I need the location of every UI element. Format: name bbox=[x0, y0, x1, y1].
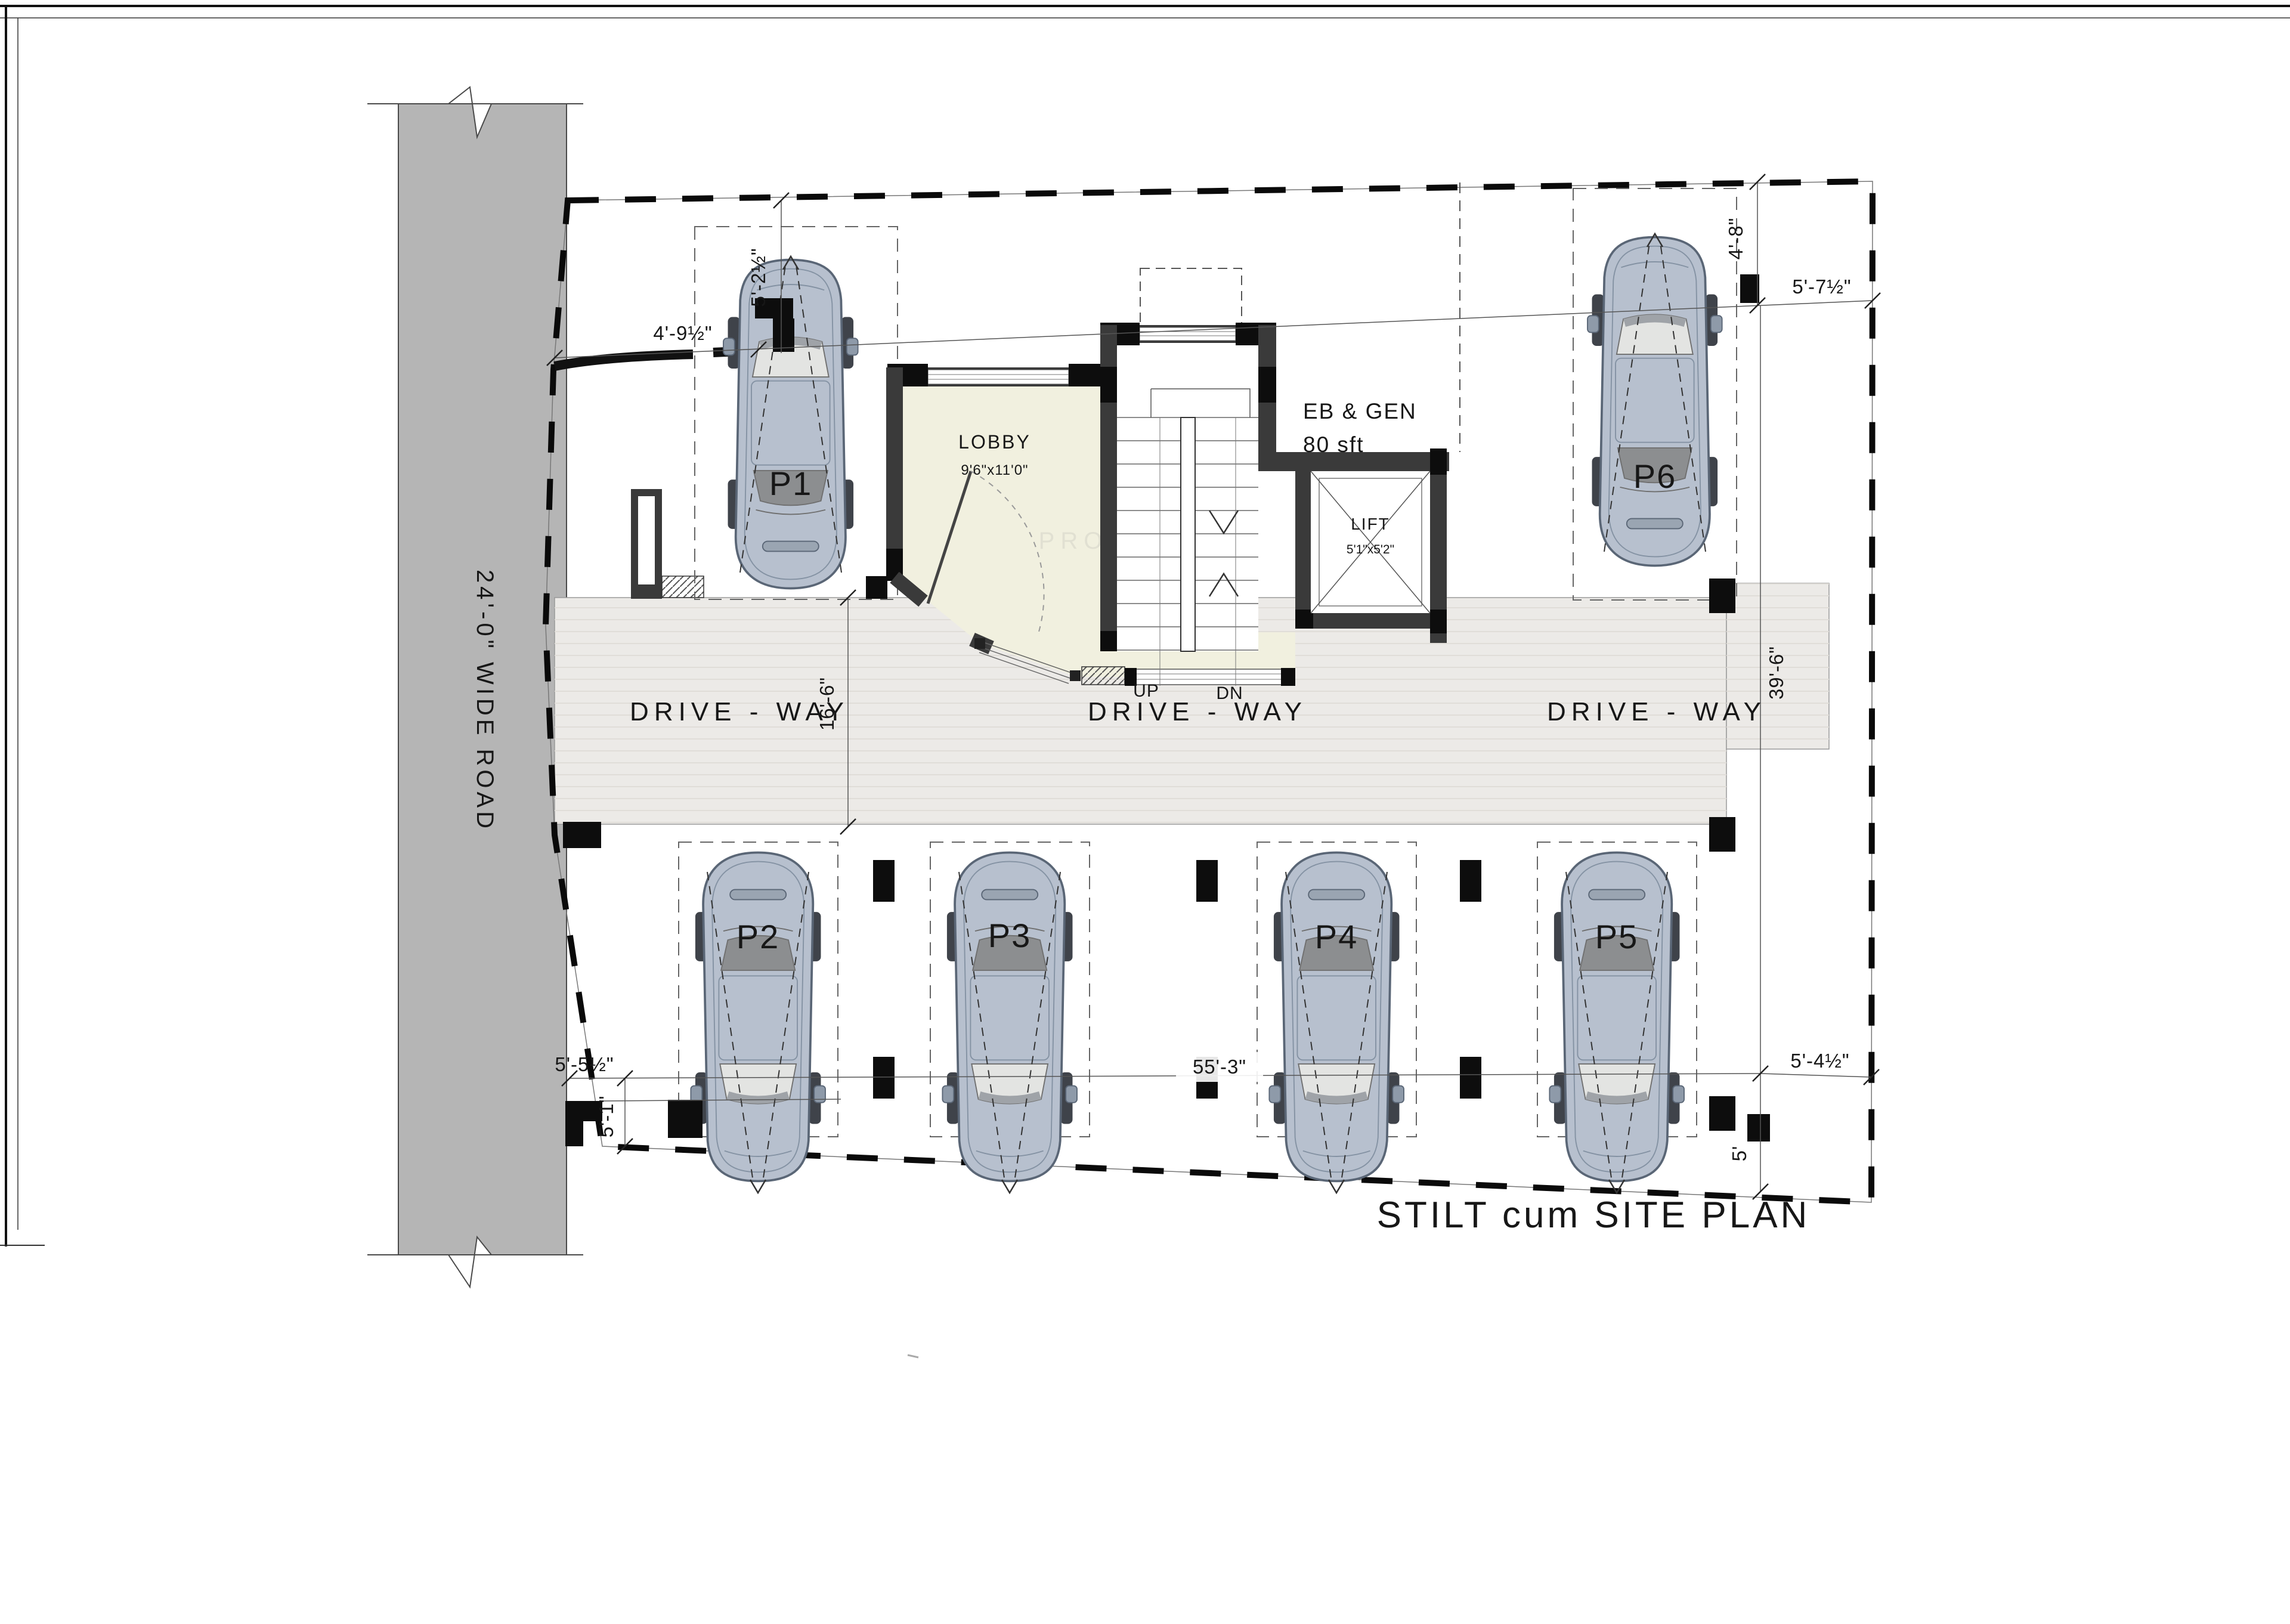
dim-plot-depth: 39'-6" bbox=[1765, 646, 1787, 700]
car-p4 bbox=[1269, 853, 1404, 1181]
road: 24'-0" WIDE ROAD bbox=[367, 87, 583, 1287]
car-p3 bbox=[942, 853, 1077, 1181]
parking-label-p2: P2 bbox=[736, 918, 780, 955]
car-p5 bbox=[1549, 853, 1684, 1181]
driveway-label-right: DRIVE - WAY bbox=[1547, 697, 1766, 726]
dim-top-left-h: 4'-9½" bbox=[653, 322, 712, 344]
parking-label-p4: P4 bbox=[1315, 918, 1358, 955]
parking-label-p1: P1 bbox=[769, 465, 813, 502]
parking-label-p5: P5 bbox=[1595, 918, 1639, 955]
ebgen-area: 80 sft bbox=[1303, 432, 1364, 457]
stair-landing-above bbox=[1140, 268, 1242, 326]
lobby-label: LOBBY bbox=[958, 431, 1031, 453]
site-plan-drawing: 24'-0" WIDE ROAD bbox=[0, 0, 2290, 1624]
stair-divider bbox=[1181, 417, 1195, 651]
lift-size: 5'1"x5'2" bbox=[1347, 543, 1394, 556]
lift-shaft: LIFT 5'1"x5'2" bbox=[1295, 448, 1447, 643]
ebgen-room: EB & GEN 80 sft bbox=[1258, 182, 1460, 471]
dim-bottom-left-h: 5'-5½" bbox=[555, 1053, 614, 1075]
staircase: UP DN bbox=[1100, 268, 1276, 703]
plan-title: STILT cum SITE PLAN bbox=[1377, 1195, 1811, 1236]
dim-bottom-width: 55'-3" bbox=[1193, 1056, 1246, 1078]
car-p6 bbox=[1587, 237, 1722, 566]
parking-label-p3: P3 bbox=[988, 917, 1032, 954]
dim-top-right-v: 4'-8" bbox=[1725, 218, 1747, 260]
watermark: PRO bbox=[1039, 528, 1109, 554]
car-p2 bbox=[691, 853, 825, 1181]
stray-mark bbox=[908, 1355, 918, 1357]
dim-top-right-h: 5'-7½" bbox=[1792, 276, 1851, 298]
driveway-labels: DRIVE - WAY DRIVE - WAY DRIVE - WAY bbox=[630, 697, 1766, 726]
dim-bottom-left-v: 5'-1" bbox=[595, 1096, 617, 1138]
dim-bottom-right-h: 5'-4½" bbox=[1790, 1050, 1849, 1072]
dim-bottom-right-v: 5' bbox=[1728, 1146, 1750, 1162]
ebgen-label: EB & GEN bbox=[1303, 399, 1417, 423]
lift-label: LIFT bbox=[1351, 515, 1390, 533]
lobby-size: 9'6"x11'0" bbox=[961, 462, 1028, 478]
driveway-label-center: DRIVE - WAY bbox=[1088, 697, 1307, 726]
lobby-window bbox=[928, 370, 1069, 384]
parking-label-p6: P6 bbox=[1633, 457, 1677, 495]
road-label: 24'-0" WIDE ROAD bbox=[472, 570, 498, 832]
dim-top-left-v: 5'-2½" bbox=[747, 248, 769, 307]
compound-wall-gate bbox=[555, 351, 751, 599]
gate-hatch bbox=[662, 576, 704, 598]
driveway-label-left: DRIVE - WAY bbox=[630, 697, 849, 726]
